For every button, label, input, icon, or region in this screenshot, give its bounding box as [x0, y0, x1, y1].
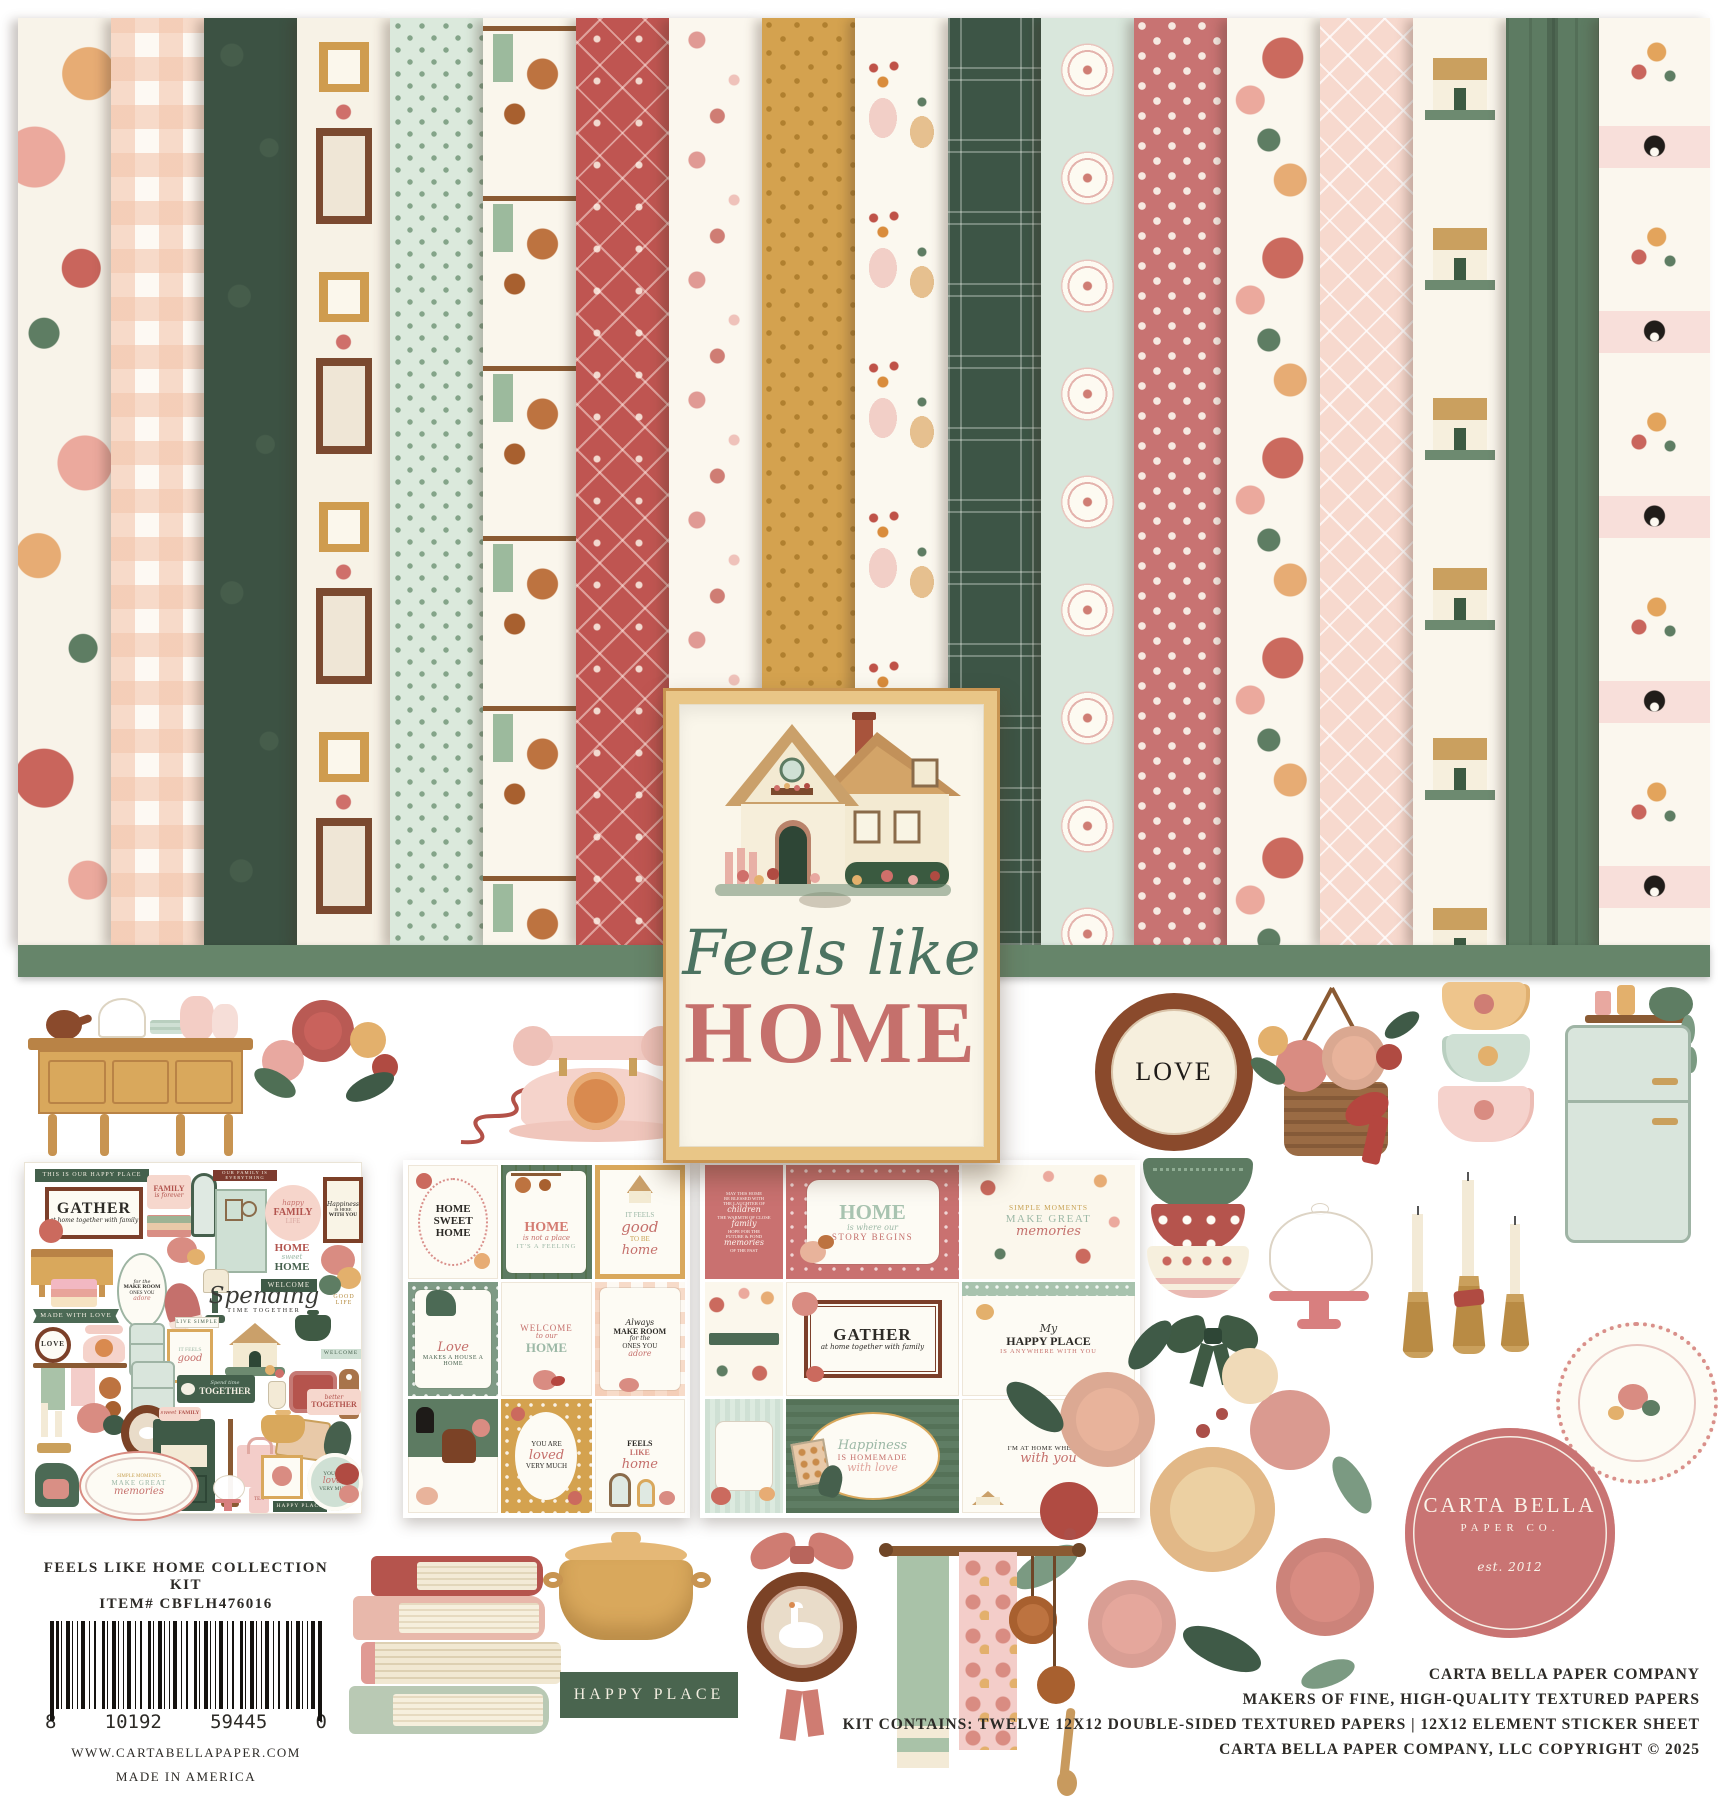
- sideboard-body: [38, 1050, 243, 1114]
- card-floral-banner: [705, 1282, 783, 1396]
- sticker-pot: [295, 1315, 331, 1341]
- pitcher-icon: [180, 996, 214, 1040]
- card-simple-moments: SIMPLE MOMENTS MAKE GREAT memories: [962, 1165, 1135, 1279]
- carta-bella-logo: CARTA BELLA PAPER CO. est. 2012: [1405, 1428, 1615, 1638]
- card-feels-like-home: FEELS LIKE home: [595, 1399, 685, 1513]
- journaling-cards-sheet: HOME SWEET HOME HOME is not a place IT'S…: [403, 1160, 690, 1518]
- sticker-family-life-circle: happy FAMILY LIFE: [265, 1185, 321, 1241]
- book-red: [371, 1556, 543, 1596]
- teapot-icon: [40, 1004, 90, 1042]
- leg: [224, 1114, 233, 1156]
- sticker-gold-frame-roses: [261, 1455, 303, 1499]
- sticker-memories-oval: SIMPLE MOMENTS MAKE GREAT memories: [87, 1459, 191, 1513]
- book-pages: [361, 1642, 561, 1684]
- title-frame: Feels like HOME: [663, 688, 1000, 1163]
- sticker-cake-stand: [209, 1475, 247, 1511]
- title-frame-canvas: Feels like HOME: [679, 704, 984, 1147]
- paper-strip-gallery-frames: [297, 18, 390, 945]
- sticker-tag: THIS IS OUR HAPPY PLACE: [35, 1169, 149, 1182]
- sticker-love-circle: LOVE: [35, 1327, 71, 1363]
- paper-strip-rose-crosses: [1134, 18, 1227, 945]
- card-mint-journaling: [705, 1399, 783, 1513]
- bowl-green: [1143, 1158, 1253, 1208]
- logo-est: est. 2012: [1477, 1560, 1542, 1574]
- sticker-better-together: better TOGETHER: [307, 1389, 361, 1415]
- rotary-dial-icon: [567, 1072, 625, 1130]
- card-loved-very-much: YOU ARE loved VERY MUCH: [501, 1399, 591, 1513]
- sticker-live-simple-tag: LIVE SIMPLE: [175, 1317, 219, 1328]
- sticker-happiness-frame: Happiness IS HERE WITH YOU: [323, 1177, 363, 1243]
- sticker-cabinet: [215, 1189, 267, 1273]
- refrigerator-illustration: [1565, 985, 1697, 1247]
- vintage-telephone-illustration: [443, 972, 698, 1154]
- sticker-together-tag: Spend timeTOGETHER: [177, 1375, 255, 1403]
- item-number: ITEM# CBFLH476016: [40, 1596, 332, 1613]
- barcode: [56, 1621, 316, 1709]
- company-info-block: CARTA BELLA PAPER COMPANY MAKERS OF FINE…: [800, 1662, 1700, 1762]
- card-blessing: MAY THIS HOME BE BLESSED WITH THE LAUGHT…: [705, 1165, 783, 1279]
- sticker-family-tag: FAMILY is forever: [147, 1175, 191, 1209]
- logo-name: CARTA BELLA: [1424, 1493, 1597, 1518]
- dutch-oven-illustration: [553, 1536, 701, 1648]
- barcode-digits: 8 10192 59445 0: [45, 1711, 327, 1733]
- love-plate-illustration: LOVE: [1095, 993, 1253, 1151]
- teacup-mint: [1446, 1034, 1530, 1082]
- collection-kit-cover: LOVE: [0, 0, 1728, 1800]
- leg: [48, 1114, 57, 1156]
- card-story-begins: HOME is where our STORY BEGINS: [786, 1165, 959, 1279]
- company-line-1: CARTA BELLA PAPER COMPANY: [800, 1662, 1700, 1687]
- happy-place-plaque: HAPPY PLACE: [560, 1672, 738, 1718]
- card-oval: YOU ARE loved VERY MUCH: [515, 1412, 577, 1500]
- card-panel: Always MAKE ROOM for the ONES YOU adore: [600, 1288, 680, 1390]
- paper-strip-green-tonal-floral: [204, 18, 297, 945]
- paper-strip-large-floral: [18, 18, 111, 945]
- sticker-gather-frame: GATHER at home together with family: [45, 1187, 143, 1239]
- canister-pink: [1595, 991, 1611, 1015]
- company-line-4: CARTA BELLA PAPER COMPANY, LLC COPYRIGHT…: [800, 1737, 1700, 1762]
- sticker-candles: [35, 1399, 73, 1457]
- card-happiness-homemade: Happiness IS HOMEMADE with love: [786, 1399, 959, 1513]
- cottage-illustration: [697, 704, 967, 924]
- sticker-vase-flowers: [261, 1365, 291, 1411]
- paper-strip-pink-lattice: [1320, 18, 1413, 945]
- made-in: MADE IN AMERICA: [40, 1769, 332, 1785]
- teacup-gold: [1442, 982, 1526, 1030]
- sticker-tag: OUR FAMILY IS EVERYTHING: [213, 1170, 277, 1181]
- candlesticks-illustration: [1398, 1172, 1546, 1397]
- company-line-3: KIT CONTAINS: TWELVE 12X12 DOUBLE-SIDED …: [800, 1712, 1700, 1737]
- card-home-sweet-home: HOME SWEET HOME: [408, 1165, 498, 1279]
- cake-dome-icon: [98, 998, 146, 1038]
- paper-strip-hanging-tags: [1599, 18, 1710, 945]
- book-mint: [349, 1686, 549, 1734]
- small-pitcher-icon: [212, 1004, 238, 1040]
- card-good-to-be-home: IT FEELS good TO BE home: [595, 1165, 685, 1279]
- book-stack-illustration: [343, 1550, 553, 1750]
- sideboard-illustration: [28, 1010, 253, 1158]
- card-room-scene: [408, 1399, 498, 1513]
- card-make-room: Always MAKE ROOM for the ONES YOU adore: [595, 1282, 685, 1396]
- paper-strip-cottages: [1413, 18, 1506, 945]
- paper-strip-peach-gingham: [111, 18, 204, 945]
- title-script: Feels like: [682, 916, 980, 989]
- company-line-2: MAKERS OF FINE, HIGH-QUALITY TEXTURED PA…: [800, 1687, 1700, 1712]
- paper-strip-green-beadboard: [1506, 18, 1599, 945]
- mixing-bowls-illustration: [1143, 1158, 1253, 1298]
- teacup-pink: [1438, 1086, 1530, 1142]
- cake-stand-illustration: [1263, 1203, 1375, 1331]
- product-info-block: FEELS LIKE HOME COLLECTION KIT ITEM# CBF…: [40, 1560, 332, 1785]
- sticker-mirror: [191, 1173, 217, 1237]
- book-pink: [353, 1596, 545, 1640]
- sticker-home-sweet-home: HOME sweet HOME: [265, 1239, 319, 1277]
- logo-sub: PAPER CO.: [1460, 1522, 1559, 1534]
- sticker-armchair: [31, 1457, 89, 1513]
- canister-gold: [1617, 985, 1635, 1015]
- card-panel: HOME is where our STORY BEGINS: [807, 1180, 939, 1264]
- paper-strip-mint-diamonds: [390, 18, 483, 945]
- paper-strip-roses: [1227, 18, 1320, 945]
- card-panel: Love MAKES A HOUSE A HOME: [415, 1290, 491, 1388]
- handset-end: [513, 1026, 553, 1066]
- cradle-post: [559, 1058, 567, 1076]
- paper-strip-red-lattice: [576, 18, 669, 945]
- sticker-sweet-family: sweetFAMILY: [159, 1407, 201, 1421]
- gather-frame: GATHER at home together with family: [804, 1300, 942, 1378]
- sticker-welcome-tag: WELCOME: [261, 1279, 317, 1292]
- title-main: HOME: [684, 983, 979, 1084]
- fridge-body: [1565, 1025, 1691, 1243]
- card-panel: HOME is not a place IT'S A FEELING: [506, 1171, 586, 1273]
- sticker-cake: [51, 1279, 97, 1307]
- paper-strip-copper-pans: [483, 18, 576, 945]
- card-home-is-a-feeling: HOME is not a place IT'S A FEELING: [501, 1165, 591, 1279]
- sticker-books: [147, 1215, 191, 1237]
- website: WWW.CARTABELLAPAPER.COM: [40, 1745, 332, 1761]
- card-love-makes-a-home: Love MAKES A HOUSE A HOME: [408, 1282, 498, 1396]
- sideboard-top: [28, 1038, 253, 1050]
- paper-strip-plates: [1041, 18, 1134, 945]
- bowl-cream: [1147, 1246, 1249, 1298]
- teacup-stack-illustration: [1436, 982, 1540, 1150]
- happy-place-label: HAPPY PLACE: [574, 1686, 725, 1704]
- element-sticker-sheet: THIS IS OUR HAPPY PLACE GATHER at home t…: [24, 1162, 362, 1514]
- love-plate-label: LOVE: [1135, 1058, 1212, 1086]
- card-welcome-home: WELCOME to our HOME: [501, 1282, 591, 1396]
- sticker-welcome-mint: WELCOME: [321, 1349, 361, 1359]
- card-gather: GATHER at home together with family: [786, 1282, 959, 1396]
- product-title: FEELS LIKE HOME COLLECTION KIT: [40, 1560, 332, 1594]
- sticker-make-room-oval: for the MAKE ROOM ONES YOU adore: [117, 1253, 167, 1329]
- leg: [176, 1114, 185, 1156]
- cradle-post: [629, 1058, 637, 1076]
- plate-stack-icon: [150, 1020, 184, 1034]
- bowl-red: [1151, 1204, 1245, 1250]
- leg: [100, 1114, 109, 1156]
- sticker-good-life: GOOD LIFE: [325, 1295, 363, 1305]
- floral-cluster-illustration: [252, 992, 417, 1114]
- hanging-basket-illustration: [1248, 986, 1420, 1191]
- sticker-pot-gold: [261, 1415, 305, 1443]
